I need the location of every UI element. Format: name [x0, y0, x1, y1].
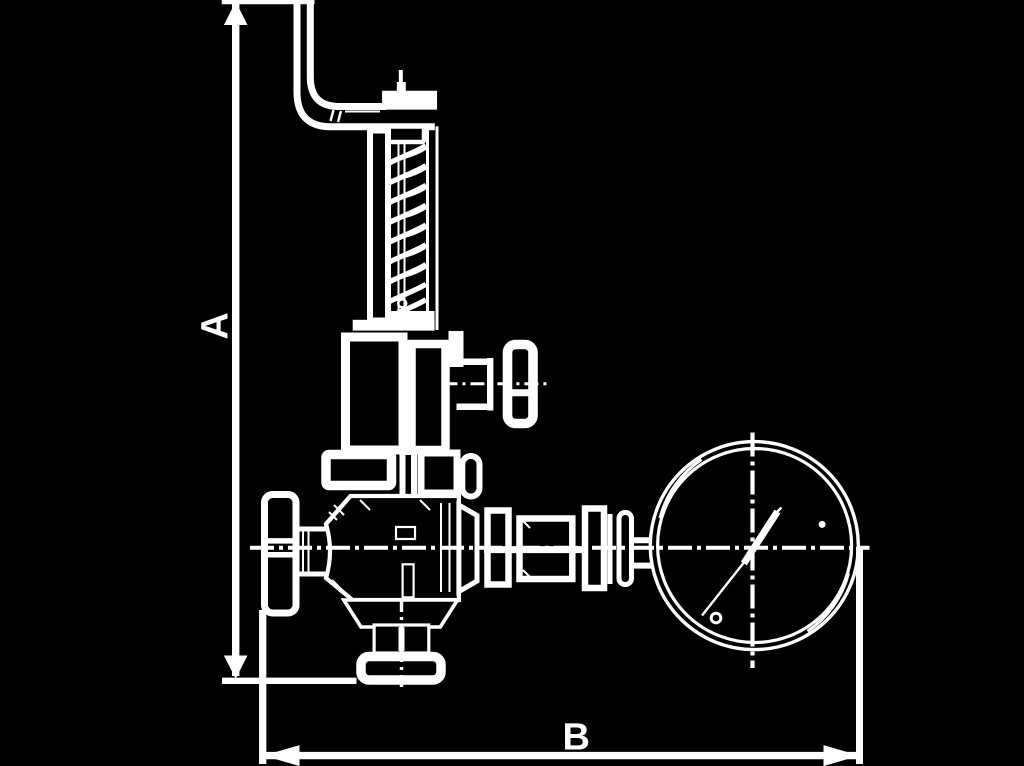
svg-text:B: B: [562, 717, 589, 759]
svg-text:A: A: [194, 312, 236, 339]
